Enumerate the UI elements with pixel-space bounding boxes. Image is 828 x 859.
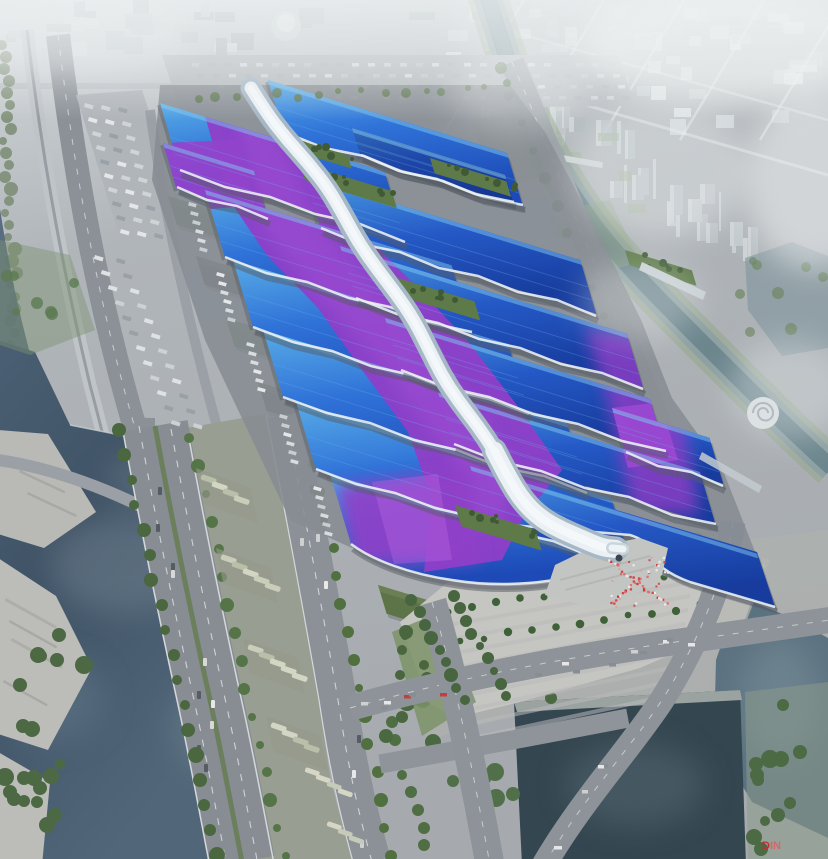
svg-text:DIN: DIN xyxy=(762,840,781,852)
